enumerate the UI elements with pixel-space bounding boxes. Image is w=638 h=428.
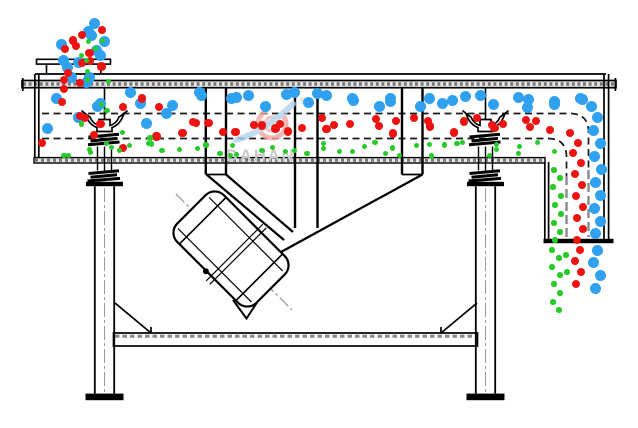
particle-dot-green — [557, 175, 562, 180]
particle-dot-green — [487, 153, 492, 158]
particle-dot-red — [546, 126, 554, 134]
particle-dot-red — [78, 31, 86, 39]
particle-dot-red — [473, 114, 481, 122]
particle-dot-green — [283, 149, 288, 154]
particle-dot-blue — [167, 100, 178, 111]
particle-dot-red — [250, 121, 258, 129]
particle-dot-green — [259, 148, 264, 153]
vibrating-screen-diagram: ® DAHAN — [0, 0, 638, 428]
particle-dot-red — [389, 129, 397, 137]
particle-dot-blue — [243, 90, 254, 101]
particle-dot-blue — [595, 270, 606, 281]
particle-dot-red — [219, 128, 227, 136]
particle-dot-red — [410, 114, 418, 122]
particle-dot-green — [557, 229, 562, 234]
particle-dot-green — [195, 146, 200, 151]
particle-dot-green — [109, 145, 114, 150]
particle-dot-green — [556, 307, 561, 312]
particle-dot-red — [579, 203, 587, 211]
particle-dot-green — [549, 247, 554, 252]
particle-dot-blue — [321, 90, 332, 101]
particle-dot-green — [517, 144, 522, 149]
particle-dot-red — [569, 149, 577, 157]
particle-dot-blue — [447, 95, 458, 106]
particle-dot-green — [79, 121, 84, 126]
particle-dot-blue — [231, 92, 242, 103]
particle-dot-red — [392, 117, 400, 125]
particle-dot-blue — [586, 101, 597, 112]
particle-dot-green — [372, 140, 377, 145]
particle-dot-green — [552, 237, 557, 242]
particle-dot-blue — [523, 94, 534, 105]
particle-dot-red — [76, 79, 84, 87]
particle-dot-green — [217, 151, 222, 156]
particle-dot-blue — [141, 118, 152, 129]
particle-dot-blue — [424, 93, 435, 104]
particle-dot-green — [230, 143, 235, 148]
particle-field — [0, 0, 638, 428]
particle-dot-green — [563, 252, 568, 257]
particle-dot-green — [117, 148, 122, 153]
particle-dot-green — [66, 153, 71, 158]
particle-dot-blue — [488, 99, 499, 110]
particle-dot-red — [330, 121, 338, 129]
particle-dot-blue — [596, 164, 607, 175]
particle-dot-blue — [590, 228, 601, 239]
particle-dot-green — [234, 152, 239, 157]
particle-dot-green — [564, 269, 569, 274]
particle-dot-red — [579, 225, 587, 233]
particle-dot-red — [276, 120, 284, 128]
particle-dot-red — [571, 257, 579, 265]
particle-dot-blue — [415, 101, 426, 112]
particle-dot-red — [566, 129, 574, 137]
particle-dot-green — [397, 153, 402, 158]
particle-dot-red — [576, 246, 584, 254]
particle-dot-green — [551, 281, 556, 286]
particle-dot-blue — [588, 257, 599, 268]
particle-dot-green — [558, 211, 563, 216]
particle-dot-green — [61, 153, 66, 158]
particle-dot-blue — [592, 245, 603, 256]
particle-dot-green — [556, 255, 561, 260]
particle-dot-blue — [460, 91, 471, 102]
particle-dot-green — [149, 141, 154, 146]
particle-dot-green — [390, 145, 395, 150]
particle-dot-green — [535, 140, 540, 145]
particle-dot-green — [551, 220, 556, 225]
particle-dot-blue — [289, 87, 300, 98]
particle-dot-red — [572, 192, 580, 200]
particle-dot-blue — [42, 123, 53, 134]
particle-dot-red — [573, 236, 581, 244]
particle-dot-blue — [595, 138, 606, 149]
particle-dot-red — [577, 268, 585, 276]
particle-dot-red — [577, 159, 585, 167]
particle-dot-green — [494, 147, 499, 152]
particle-dot-red — [490, 124, 498, 132]
particle-dot-green — [427, 142, 432, 147]
particle-dot-red — [571, 170, 579, 178]
particle-dot-blue — [575, 93, 586, 104]
particle-dot-green — [104, 108, 109, 113]
particle-dot-red — [97, 62, 105, 70]
particle-dot-green — [429, 153, 434, 158]
particle-dot-red — [178, 129, 186, 137]
particle-dot-green — [350, 149, 355, 154]
particle-dot-blue — [589, 151, 600, 162]
particle-dot-red — [152, 132, 160, 140]
particle-dot-red — [98, 26, 106, 34]
particle-dot-green — [270, 145, 275, 150]
particle-dot-blue — [595, 216, 606, 227]
particle-dot-green — [454, 141, 459, 146]
particle-dot-green — [292, 148, 297, 153]
particle-dot-green — [106, 79, 111, 84]
particle-dot-blue — [592, 112, 603, 123]
particle-dot-green — [127, 143, 132, 148]
particle-dot-blue — [95, 50, 106, 61]
particle-dot-green — [79, 53, 84, 58]
particle-dot-green — [203, 142, 208, 147]
particle-dot-green — [147, 135, 152, 140]
particle-dot-blue — [125, 87, 136, 98]
particle-dot-blue — [475, 90, 486, 101]
particle-dot-green — [362, 144, 367, 149]
particle-dot-red — [96, 120, 104, 128]
particle-dot-red — [346, 120, 354, 128]
particle-dot-red — [426, 122, 434, 130]
particle-dot-green — [552, 149, 557, 154]
particle-dot-green — [549, 264, 554, 269]
particle-dot-red — [578, 181, 586, 189]
particle-dot-green — [552, 202, 557, 207]
particle-dot-blue — [385, 96, 396, 107]
particle-dot-red — [574, 139, 582, 147]
particle-dot-blue — [260, 101, 271, 112]
particle-dot-red — [460, 117, 468, 125]
particle-dot-red — [138, 94, 146, 102]
particle-dot-red — [284, 127, 292, 135]
particle-dot-green — [558, 193, 563, 198]
particle-dot-green — [550, 299, 555, 304]
particle-dot-green — [88, 150, 93, 155]
particle-dot-red — [318, 114, 326, 122]
particle-dot-red — [231, 128, 239, 136]
particle-dot-blue — [303, 97, 314, 108]
particle-dot-green — [550, 184, 555, 189]
particle-dot-green — [84, 58, 89, 63]
particle-dot-red — [38, 139, 46, 147]
particle-dot-red — [573, 214, 581, 222]
particle-dot-blue — [590, 283, 601, 294]
particle-dot-blue — [595, 190, 606, 201]
particle-dot-red — [204, 119, 212, 127]
particle-dot-red — [258, 121, 266, 129]
particle-dot-blue — [347, 93, 358, 104]
particle-dot-blue — [374, 101, 385, 112]
particle-dot-red — [375, 122, 383, 130]
particle-dot-green — [494, 142, 499, 147]
particle-dot-blue — [589, 203, 600, 214]
particle-dot-red — [499, 120, 507, 128]
particle-dot-green — [414, 143, 419, 148]
particle-dot-red — [532, 117, 540, 125]
particle-dot-red — [572, 280, 580, 288]
particle-dot-green — [305, 151, 310, 156]
particle-dot-red — [61, 45, 69, 53]
particle-dot-green — [177, 147, 182, 152]
particle-dot-blue — [590, 177, 601, 188]
particle-dot-red — [119, 103, 127, 111]
particle-dot-red — [450, 128, 458, 136]
particle-dot-green — [557, 272, 562, 277]
particle-dot-red — [72, 42, 80, 50]
particle-dot-green — [321, 146, 326, 151]
particle-dot-green — [383, 151, 388, 156]
particle-dot-blue — [513, 92, 524, 103]
particle-dot-green — [442, 142, 447, 147]
particle-dot-green — [337, 149, 342, 154]
particle-dot-blue — [549, 99, 560, 110]
particle-dot-green — [460, 140, 465, 145]
particle-dot-green — [551, 167, 556, 172]
particle-dot-red — [60, 85, 68, 93]
particle-dot-red — [155, 103, 163, 111]
particle-dot-green — [159, 148, 164, 153]
particle-dot-blue — [588, 125, 599, 136]
particle-dot-green — [228, 153, 233, 158]
particle-dot-green — [557, 290, 562, 295]
particle-dot-green — [516, 151, 521, 156]
particle-dot-red — [90, 131, 98, 139]
particle-dot-red — [60, 76, 68, 84]
particle-dot-red — [58, 98, 66, 106]
particle-dot-green — [86, 39, 91, 44]
particle-dot-green — [120, 130, 125, 135]
particle-dot-red — [298, 124, 306, 132]
particle-dot-blue — [437, 98, 448, 109]
